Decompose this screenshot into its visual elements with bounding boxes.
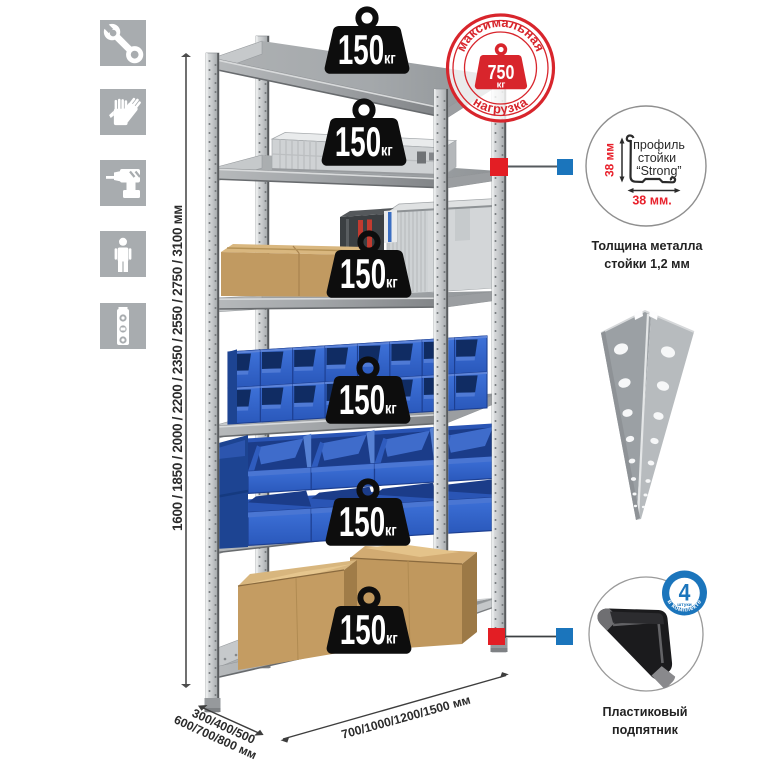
svg-text:1600 / 1850 / 2000 / 2200 / 23: 1600 / 1850 / 2000 / 2200 / 2350 / 2550 …	[170, 205, 185, 531]
svg-text:Пластиковый: Пластиковый	[602, 705, 687, 719]
svg-text:кг: кг	[497, 80, 506, 91]
svg-text:стойки 1,2 мм: стойки 1,2 мм	[604, 257, 690, 271]
svg-text:подпятник: подпятник	[612, 723, 679, 737]
svg-text:профиль: профиль	[633, 138, 685, 152]
svg-text:“Strong”: “Strong”	[636, 164, 681, 178]
svg-text:38 мм: 38 мм	[603, 143, 617, 177]
svg-text:38 мм.: 38 мм.	[632, 194, 671, 208]
svg-text:Толщина металла: Толщина металла	[591, 239, 703, 253]
svg-text:стойки: стойки	[638, 151, 676, 165]
